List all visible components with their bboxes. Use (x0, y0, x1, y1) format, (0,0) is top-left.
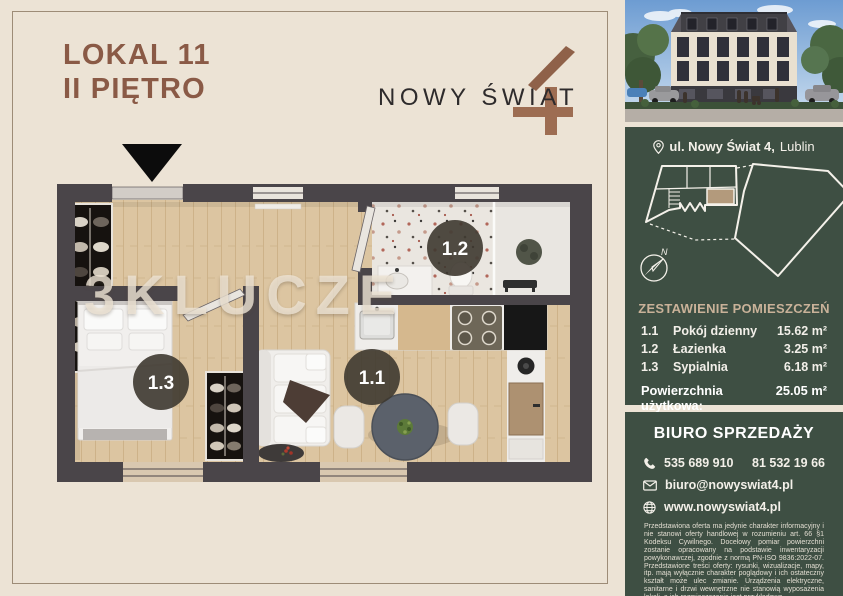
unit-title: LOKAL 11 II PIĘTRO (63, 38, 211, 106)
kitchen-counter-dark (504, 303, 547, 350)
badge-bedroom-label: 1.3 (148, 373, 174, 394)
address: ul. Nowy Świat 4, Lublin (633, 139, 835, 154)
table-row: 1.1 Pokój dzienny 15.62 m² (625, 322, 843, 340)
rooms-table: 1.1 Pokój dzienny 15.62 m² 1.2 Łazienka … (625, 322, 843, 413)
entrance-door (112, 187, 183, 199)
badge-living-label: 1.1 (359, 368, 386, 389)
radiator (255, 204, 301, 209)
potted-plant (516, 239, 542, 265)
unit-floor: II PIĘTRO (63, 72, 211, 106)
email-row: biuro@nowyswiat4.pl (625, 474, 843, 496)
address-city: Lublin (780, 139, 815, 154)
phone-row: 535 689 910 81 532 19 66 (625, 452, 843, 474)
stairs (669, 188, 680, 208)
location-pin-icon (653, 140, 664, 154)
total-area-value: 25.05 m² (776, 383, 827, 413)
room-area: 6.18 m² (784, 358, 827, 376)
rooms-heading: ZESTAWIENIE POMIESZCZEŃ (635, 301, 833, 316)
floor-plan-drawing: 1.1 1.2 1.3 (40, 140, 600, 490)
cooktop (452, 306, 502, 350)
phone-icon (643, 457, 656, 470)
cabinet (509, 383, 543, 435)
phone-secondary[interactable]: 81 532 19 66 (752, 452, 825, 474)
north-label: N (661, 247, 668, 257)
logo-wordmark: NOWY ŚWIAT (378, 84, 578, 112)
table-row: 1.2 Łazienka 3.25 m² (625, 340, 843, 358)
room-name: Łazienka (673, 340, 784, 358)
entrance-arrow-icon (122, 144, 182, 182)
legal-disclaimer: Przedstawiona oferta ma jedynie charakte… (644, 523, 824, 596)
chair (448, 403, 478, 445)
room-number: 1.3 (641, 358, 673, 376)
kitchen-counter-wood (398, 305, 450, 350)
chair (334, 406, 364, 448)
bed-bench (83, 429, 167, 440)
sales-office-panel: BIURO SPRZEDAŻY 535 689 910 81 532 19 66… (625, 412, 843, 596)
bench (503, 280, 537, 288)
unit-number: LOKAL 11 (63, 38, 211, 72)
envelope-icon (643, 480, 657, 491)
website-url[interactable]: www.nowyswiat4.pl (664, 496, 781, 518)
building-photo (625, 0, 843, 122)
sales-office-heading: BIURO SPRZEDAŻY (635, 425, 833, 443)
plot-outline (735, 164, 843, 276)
room-number: 1.1 (641, 322, 673, 340)
site-plan: N (625, 158, 843, 298)
globe-icon (643, 501, 656, 514)
side-table (258, 444, 304, 462)
phone-primary[interactable]: 535 689 910 (664, 452, 734, 474)
table-row: 1.3 Sypialnia 6.18 m² (625, 358, 843, 376)
bedroom-wardrobe (206, 372, 244, 460)
room-number: 1.2 (641, 340, 673, 358)
real-estate-flyer: LOKAL 11 II PIĘTRO NOWY ŚWIAT (0, 0, 843, 596)
total-area-label: Powierzchnia użytkowa: (641, 383, 776, 413)
room-name: Pokój dzienny (673, 322, 777, 340)
badge-bathroom-label: 1.2 (442, 239, 468, 260)
room-area: 3.25 m² (784, 340, 827, 358)
room-name: Sypialnia (673, 358, 784, 376)
website-row: www.nowyswiat4.pl (625, 496, 843, 518)
compass-icon: N (641, 247, 668, 281)
info-panel: ul. Nowy Świat 4, Lublin N ZESTAWIENIE (625, 127, 843, 405)
sofa (256, 350, 330, 446)
floor-plan: 1.1 1.2 1.3 3KLUCZE (40, 140, 600, 490)
address-street: ul. Nowy Świat 4, (669, 139, 774, 154)
total-area-row: Powierzchnia użytkowa: 25.05 m² (625, 383, 843, 413)
room-area: 15.62 m² (777, 322, 827, 340)
unit-location-highlight (707, 189, 734, 204)
email-address[interactable]: biuro@nowyswiat4.pl (665, 474, 793, 496)
